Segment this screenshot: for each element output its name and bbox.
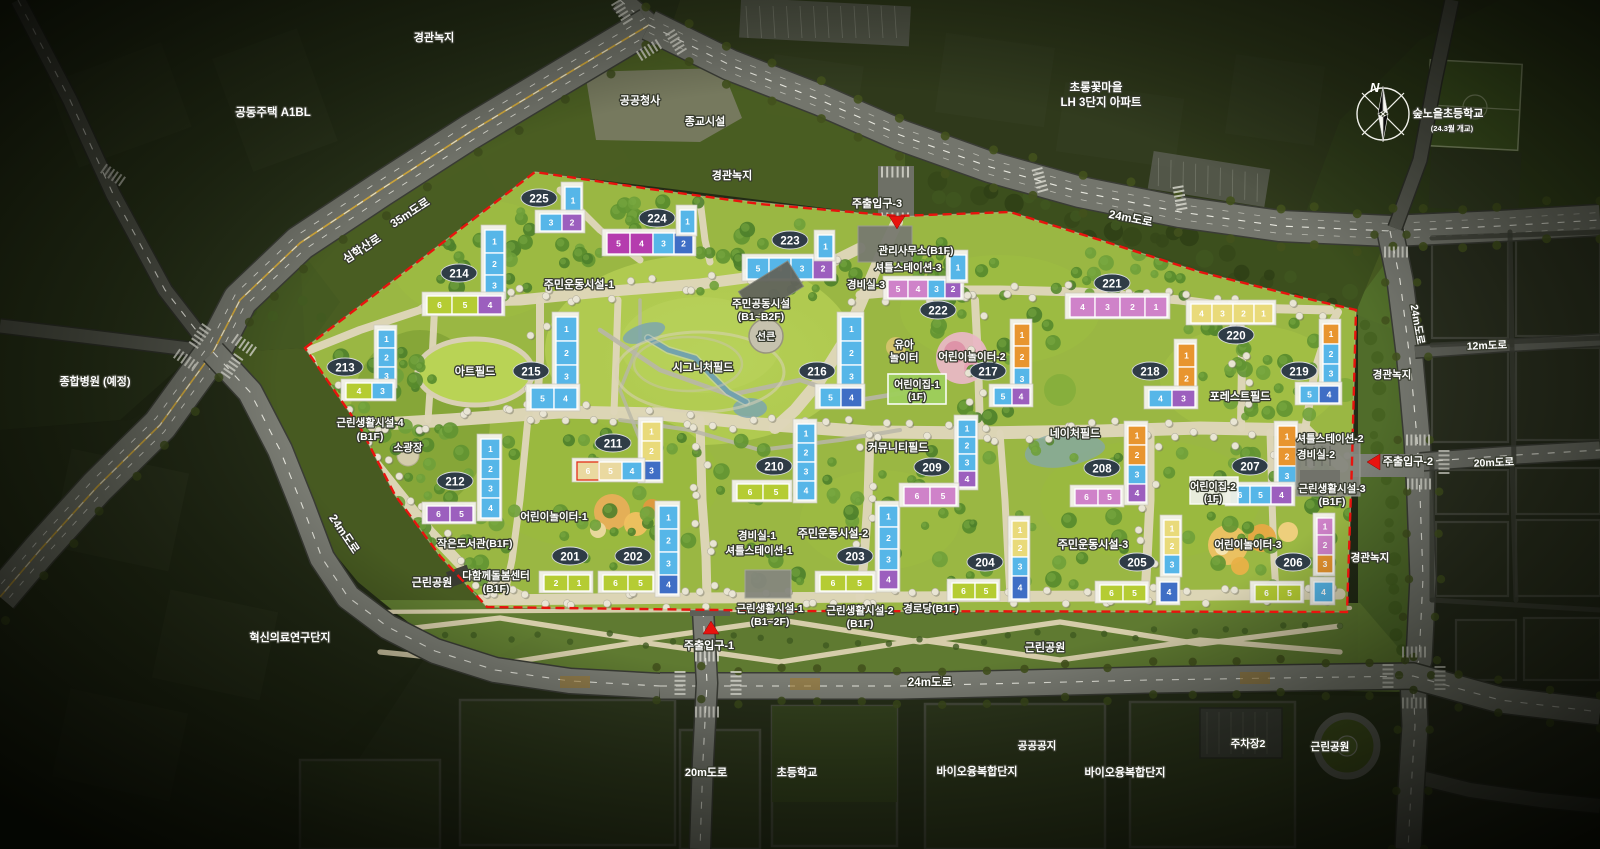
svg-text:네이처필드: 네이처필드 — [1050, 426, 1101, 440]
svg-text:숲노을초등학교: 숲노을초등학교 — [1413, 106, 1484, 120]
svg-text:아트필드: 아트필드 — [455, 364, 495, 378]
svg-text:N: N — [1370, 80, 1380, 95]
svg-text:어린이놀이터-2: 어린이놀이터-2 — [938, 350, 1005, 363]
svg-text:커뮤니티필드: 커뮤니티필드 — [868, 440, 929, 454]
svg-text:어린이집-1: 어린이집-1 — [894, 378, 940, 391]
svg-text:(B1F): (B1F) — [483, 583, 510, 595]
svg-text:관리사무소(B1F): 관리사무소(B1F) — [878, 244, 953, 257]
svg-text:셔틀스테이션-3: 셔틀스테이션-3 — [874, 261, 941, 274]
svg-text:(1F): (1F) — [908, 392, 926, 403]
svg-text:주민운동시설-2: 주민운동시설-2 — [798, 526, 869, 540]
svg-text:219: 219 — [1289, 366, 1308, 378]
svg-text:셔틀스테이션-1: 셔틀스테이션-1 — [725, 544, 792, 557]
svg-text:종합병원 (예정): 종합병원 (예정) — [59, 374, 130, 388]
svg-text:경로당(B1F): 경로당(B1F) — [903, 602, 959, 615]
svg-text:209: 209 — [922, 462, 941, 474]
svg-text:213: 213 — [335, 362, 354, 374]
svg-text:(B1~2F): (B1~2F) — [751, 616, 790, 628]
svg-text:경비실-3: 경비실-3 — [847, 278, 885, 291]
svg-text:혁신의료연구단지: 혁신의료연구단지 — [250, 630, 331, 644]
svg-text:주출입구-2: 주출입구-2 — [1383, 454, 1433, 468]
svg-text:경비실-2: 경비실-2 — [1297, 448, 1335, 461]
svg-text:216: 216 — [807, 366, 826, 378]
svg-text:소광장: 소광장 — [394, 441, 423, 454]
svg-text:종교시설: 종교시설 — [685, 114, 725, 128]
svg-text:217: 217 — [978, 366, 997, 378]
svg-text:208: 208 — [1092, 463, 1112, 475]
svg-text:220: 220 — [1226, 330, 1245, 342]
svg-text:(B1F): (B1F) — [1319, 496, 1346, 508]
svg-text:근린공원: 근린공원 — [412, 575, 452, 589]
svg-text:어린이놀이터-3: 어린이놀이터-3 — [1214, 538, 1281, 551]
svg-text:(B1F): (B1F) — [357, 431, 384, 443]
svg-text:바이오융복합단지: 바이오융복합단지 — [1085, 765, 1166, 779]
svg-text:유아: 유아 — [894, 338, 914, 351]
svg-text:근린생활시설-2: 근린생활시설-2 — [826, 604, 893, 617]
svg-text:경비실-1: 경비실-1 — [738, 529, 776, 542]
svg-text:공공청사: 공공청사 — [620, 93, 661, 107]
svg-text:206: 206 — [1283, 557, 1302, 569]
svg-text:(1F): (1F) — [1204, 494, 1222, 505]
svg-text:주출입구-3: 주출입구-3 — [852, 196, 902, 210]
svg-text:주민공동시설: 주민공동시설 — [732, 297, 790, 310]
svg-text:20m도로: 20m도로 — [1474, 456, 1515, 469]
svg-text:207: 207 — [1240, 461, 1259, 473]
svg-text:214: 214 — [449, 268, 469, 280]
svg-text:선큰: 선큰 — [757, 330, 775, 343]
svg-text:(B1~B2F): (B1~B2F) — [738, 311, 784, 323]
svg-text:공동주택 A1BL: 공동주택 A1BL — [235, 105, 311, 119]
svg-text:24m도로: 24m도로 — [908, 676, 953, 689]
svg-text:초롱꽃마을: 초롱꽃마을 — [1070, 80, 1123, 94]
svg-text:211: 211 — [604, 438, 623, 450]
svg-text:근린생활시설-3: 근린생활시설-3 — [1298, 482, 1365, 495]
svg-text:셔틀스테이션-2: 셔틀스테이션-2 — [1296, 432, 1363, 445]
svg-text:놀이터: 놀이터 — [890, 351, 919, 364]
svg-text:근린생활시설-1: 근린생활시설-1 — [736, 602, 803, 615]
svg-text:204: 204 — [975, 557, 995, 569]
svg-text:포레스트필드: 포레스트필드 — [1210, 389, 1271, 403]
svg-text:222: 222 — [928, 305, 947, 317]
svg-text:경관녹지: 경관녹지 — [1351, 551, 1390, 564]
svg-text:초등학교: 초등학교 — [777, 765, 817, 779]
svg-text:어린이놀이터-1: 어린이놀이터-1 — [520, 510, 587, 523]
svg-text:212: 212 — [445, 476, 464, 488]
svg-text:주민운동시설-3: 주민운동시설-3 — [1058, 537, 1129, 551]
svg-text:224: 224 — [647, 213, 667, 225]
svg-text:바이오융복합단지: 바이오융복합단지 — [937, 764, 1018, 778]
svg-text:225: 225 — [529, 193, 549, 205]
svg-text:223: 223 — [780, 235, 799, 247]
svg-text:202: 202 — [623, 551, 642, 563]
svg-text:(24.3월 개교): (24.3월 개교) — [1431, 123, 1474, 133]
svg-text:근린공원: 근린공원 — [1311, 740, 1350, 753]
svg-text:경관녹지: 경관녹지 — [414, 30, 454, 44]
svg-text:203: 203 — [845, 551, 864, 563]
svg-text:주민운동시설-1: 주민운동시설-1 — [544, 277, 615, 291]
svg-text:205: 205 — [1127, 557, 1147, 569]
svg-text:시그니처필드: 시그니처필드 — [673, 360, 734, 374]
svg-text:어린이집-2: 어린이집-2 — [1190, 480, 1236, 493]
svg-text:주출입구-1: 주출입구-1 — [684, 638, 734, 652]
svg-text:근린공원: 근린공원 — [1025, 640, 1065, 654]
svg-text:201: 201 — [560, 551, 580, 563]
svg-text:작은도서관(B1F): 작은도서관(B1F) — [437, 537, 512, 550]
svg-text:(B1F): (B1F) — [847, 618, 874, 630]
svg-text:20m도로: 20m도로 — [685, 766, 727, 779]
svg-text:다함께돌봄센터: 다함께돌봄센터 — [462, 569, 530, 582]
svg-text:경관녹지: 경관녹지 — [1373, 368, 1412, 381]
svg-text:210: 210 — [764, 461, 783, 473]
svg-text:공공공지: 공공공지 — [1018, 739, 1057, 752]
svg-text:12m도로: 12m도로 — [1467, 339, 1508, 352]
svg-text:경관녹지: 경관녹지 — [712, 168, 752, 182]
svg-text:221: 221 — [1102, 278, 1122, 290]
svg-text:주차장2: 주차장2 — [1231, 737, 1266, 750]
svg-text:LH 3단지 아파트: LH 3단지 아파트 — [1060, 95, 1141, 109]
svg-text:215: 215 — [521, 366, 541, 378]
svg-text:근린생활시설-4: 근린생활시설-4 — [336, 416, 403, 429]
svg-text:218: 218 — [1140, 366, 1160, 378]
